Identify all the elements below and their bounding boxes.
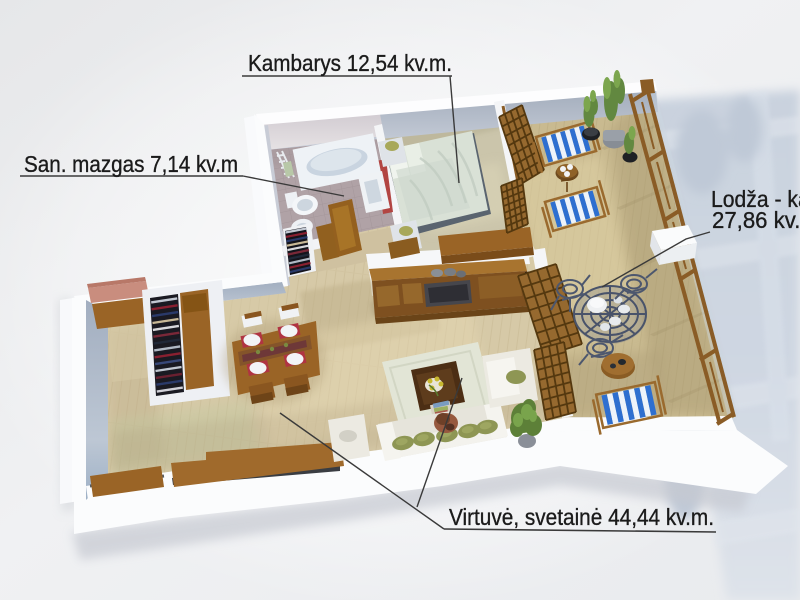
svg-text:San. mazgas 7,14 kv.m: San. mazgas 7,14 kv.m <box>24 151 238 177</box>
svg-text:Kambarys 12,54 kv.m.: Kambarys 12,54 kv.m. <box>248 50 452 76</box>
svg-text:27,86 kv.m.: 27,86 kv.m. <box>712 207 800 233</box>
svg-text:Virtuvė, svetainė 44,44 kv.m.: Virtuvė, svetainė 44,44 kv.m. <box>449 504 714 530</box>
